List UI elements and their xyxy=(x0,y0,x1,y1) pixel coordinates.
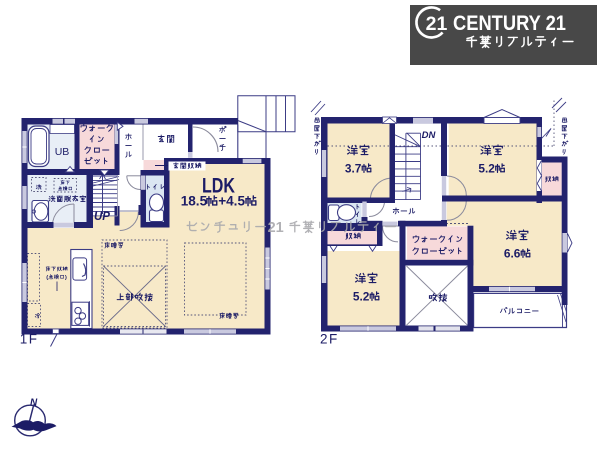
svg-text:UP: UP xyxy=(94,211,110,223)
svg-text:21: 21 xyxy=(268,220,284,236)
svg-text:DN: DN xyxy=(422,130,437,141)
svg-text:UB: UB xyxy=(55,146,70,158)
svg-text:+4.5: +4.5 xyxy=(218,194,245,209)
svg-text:1F: 1F xyxy=(20,332,39,347)
svg-text:3.7: 3.7 xyxy=(345,161,362,175)
svg-text:5.2: 5.2 xyxy=(478,161,495,175)
svg-text:): ) xyxy=(65,275,67,281)
svg-text:CENTURY 21: CENTURY 21 xyxy=(453,11,566,35)
svg-text:2F: 2F xyxy=(320,332,339,347)
svg-text:5.2: 5.2 xyxy=(353,289,370,303)
svg-text:18.5: 18.5 xyxy=(181,194,208,209)
svg-text:21: 21 xyxy=(426,13,448,35)
svg-text:N: N xyxy=(30,398,38,409)
svg-text:6.6: 6.6 xyxy=(504,246,521,260)
svg-text:(: ( xyxy=(46,275,48,281)
